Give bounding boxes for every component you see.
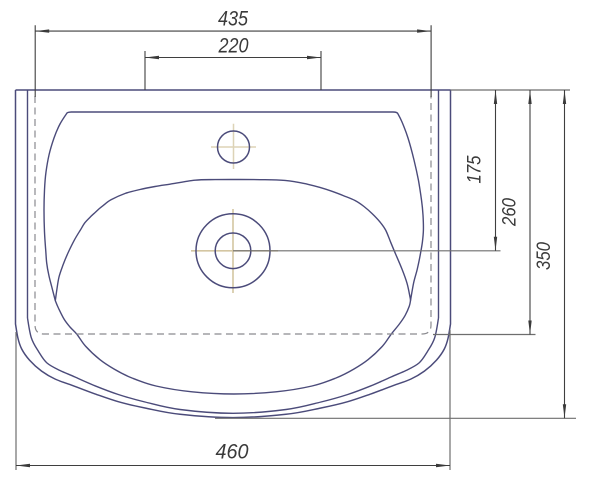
svg-text:435: 435	[218, 8, 248, 31]
svg-text:260: 260	[500, 198, 521, 227]
svg-text:175: 175	[465, 155, 486, 183]
svg-text:350: 350	[534, 242, 555, 270]
svg-text:460: 460	[216, 441, 249, 464]
svg-text:220: 220	[218, 35, 249, 58]
